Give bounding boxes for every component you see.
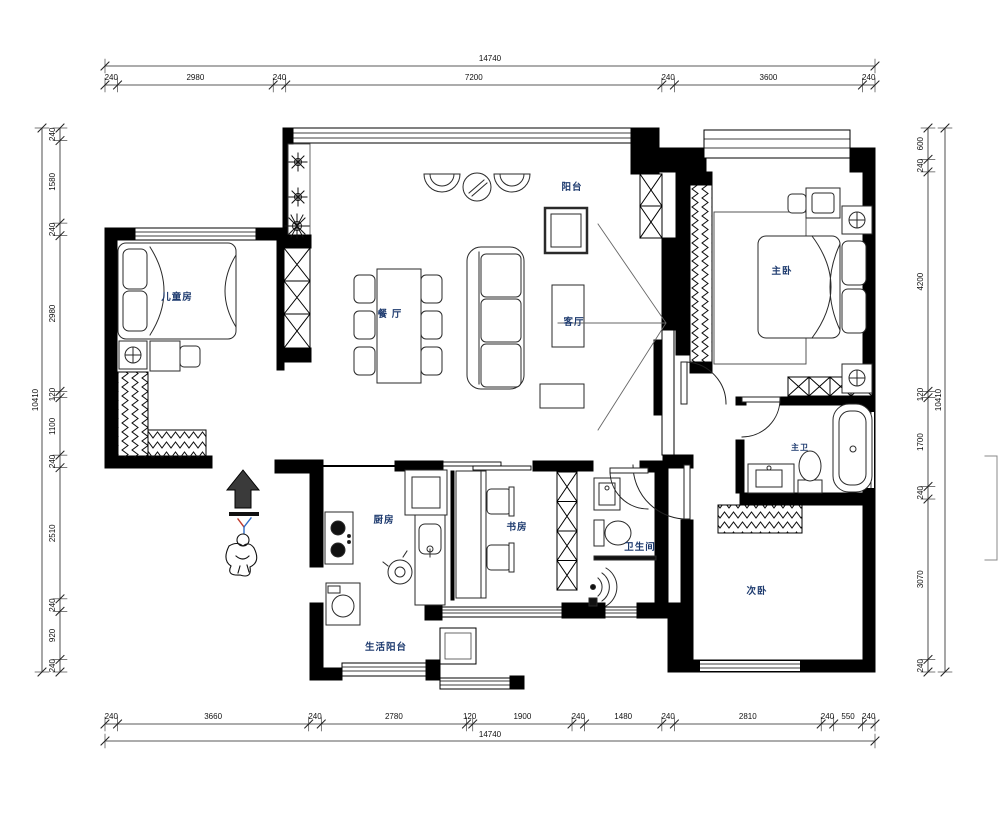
dim-label: 920 — [48, 628, 57, 642]
dim-label: 3660 — [204, 712, 222, 721]
coffee-table — [552, 285, 584, 347]
room-label-master-bedroom: 主卧 — [771, 265, 792, 277]
room-label-master-bath: 主卫 — [791, 442, 809, 452]
dim-label: 240 — [862, 712, 876, 721]
dim-label: 3070 — [916, 570, 925, 588]
dim-label: 240 — [916, 486, 925, 500]
dim-label: 240 — [105, 712, 119, 721]
room-label-kids-room: 儿童房 — [160, 291, 193, 303]
master-bath-vanity — [748, 464, 794, 493]
room-label-balcony: 阳台 — [561, 181, 582, 193]
dim-label: 240 — [48, 127, 57, 141]
dim-label: 240 — [105, 73, 119, 82]
side-table — [540, 384, 584, 408]
dim-label: 10410 — [934, 388, 943, 411]
kitchen-counter-sink — [415, 515, 445, 605]
neighbor-unit-marker — [985, 456, 997, 560]
dim-label: 240 — [48, 659, 57, 673]
study-desk — [456, 471, 486, 598]
floor-plan-drawing: 阳台 餐 厅 客厅 主卧 儿童房 厨房 书房 卫生间 主卫 次卧 生活阳台 24… — [0, 0, 1000, 826]
room-label-second-bedroom: 次卧 — [746, 585, 767, 597]
dim-label: 550 — [841, 712, 855, 721]
master-desk — [788, 188, 840, 218]
dim-label: 2980 — [48, 304, 57, 322]
entry-arrow-icon — [227, 470, 259, 508]
dim-label: 240 — [572, 712, 586, 721]
master-wardrobe — [690, 172, 712, 373]
dim-label: 600 — [916, 136, 925, 150]
dim-label: 1100 — [48, 417, 57, 435]
dim-label: 240 — [916, 659, 925, 673]
kitchen-cabinet — [405, 470, 447, 515]
shower-head — [589, 568, 617, 606]
room-label-bathroom: 卫生间 — [624, 541, 656, 553]
dim-label: 14740 — [479, 730, 502, 739]
dim-label: 240 — [862, 73, 876, 82]
figure-sketch — [226, 534, 257, 576]
master-bath-toilet — [798, 451, 822, 493]
balcony-table — [463, 173, 491, 201]
dining-table — [377, 269, 421, 383]
dim-label: 1900 — [513, 712, 531, 721]
dim-label: 120 — [463, 712, 477, 721]
dim-label: 240 — [661, 712, 675, 721]
dim-label: 2810 — [739, 712, 757, 721]
dim-label: 10410 — [31, 388, 40, 411]
bathroom-sink — [594, 478, 620, 510]
dim-label: 240 — [48, 454, 57, 468]
second-bedroom-wardrobe — [718, 505, 802, 533]
dim-label: 14740 — [479, 54, 502, 63]
dim-label: 240 — [48, 222, 57, 236]
kitchen-kettle — [383, 551, 412, 584]
dim-label: 1700 — [916, 433, 925, 451]
washing-machine — [326, 583, 360, 625]
master-bath-door — [742, 397, 780, 437]
dim-label: 240 — [273, 73, 287, 82]
room-label-kitchen: 厨房 — [373, 514, 394, 526]
sofa — [467, 247, 524, 389]
planter-flowers — [285, 153, 309, 238]
planter-box — [545, 208, 587, 253]
dim-label: 240 — [661, 73, 675, 82]
master-bed — [714, 212, 866, 364]
dim-label: 1480 — [614, 712, 632, 721]
kids-wardrobe — [118, 372, 206, 458]
dim-label: 120 — [48, 387, 57, 401]
room-label-living: 客厅 — [562, 316, 584, 328]
shower-partition — [594, 556, 656, 560]
dim-label: 7200 — [465, 73, 483, 82]
dim-label: 2780 — [385, 712, 403, 721]
dim-label: 3600 — [760, 73, 778, 82]
kids-nightstand — [119, 341, 147, 369]
dim-label: 240 — [821, 712, 835, 721]
dim-label: 4200 — [916, 272, 925, 290]
dim-label: 2510 — [48, 524, 57, 542]
master-nightstand-bottom — [842, 364, 872, 393]
master-nightstand-top — [842, 206, 872, 234]
room-label-utility-balcony: 生活阳台 — [365, 641, 407, 653]
room-label-study: 书房 — [506, 521, 527, 533]
room-label-dining: 餐 厅 — [377, 308, 403, 320]
dim-label: 240 — [308, 712, 322, 721]
floor-plan-page: 阳台 餐 厅 客厅 主卧 儿童房 厨房 书房 卫生间 主卫 次卧 生活阳台 24… — [0, 0, 1000, 826]
dim-label: 2980 — [186, 73, 204, 82]
dim-label: 120 — [916, 387, 925, 401]
balcony-chair-left — [424, 174, 460, 192]
entry-marker — [226, 470, 259, 576]
stove — [325, 512, 353, 564]
kids-bed — [118, 243, 236, 339]
dim-label: 1580 — [48, 172, 57, 190]
kids-desk — [150, 341, 200, 371]
bathtub — [833, 404, 872, 492]
balcony-chair-right — [494, 174, 530, 192]
dim-label: 240 — [48, 598, 57, 612]
dim-label: 240 — [916, 158, 925, 172]
